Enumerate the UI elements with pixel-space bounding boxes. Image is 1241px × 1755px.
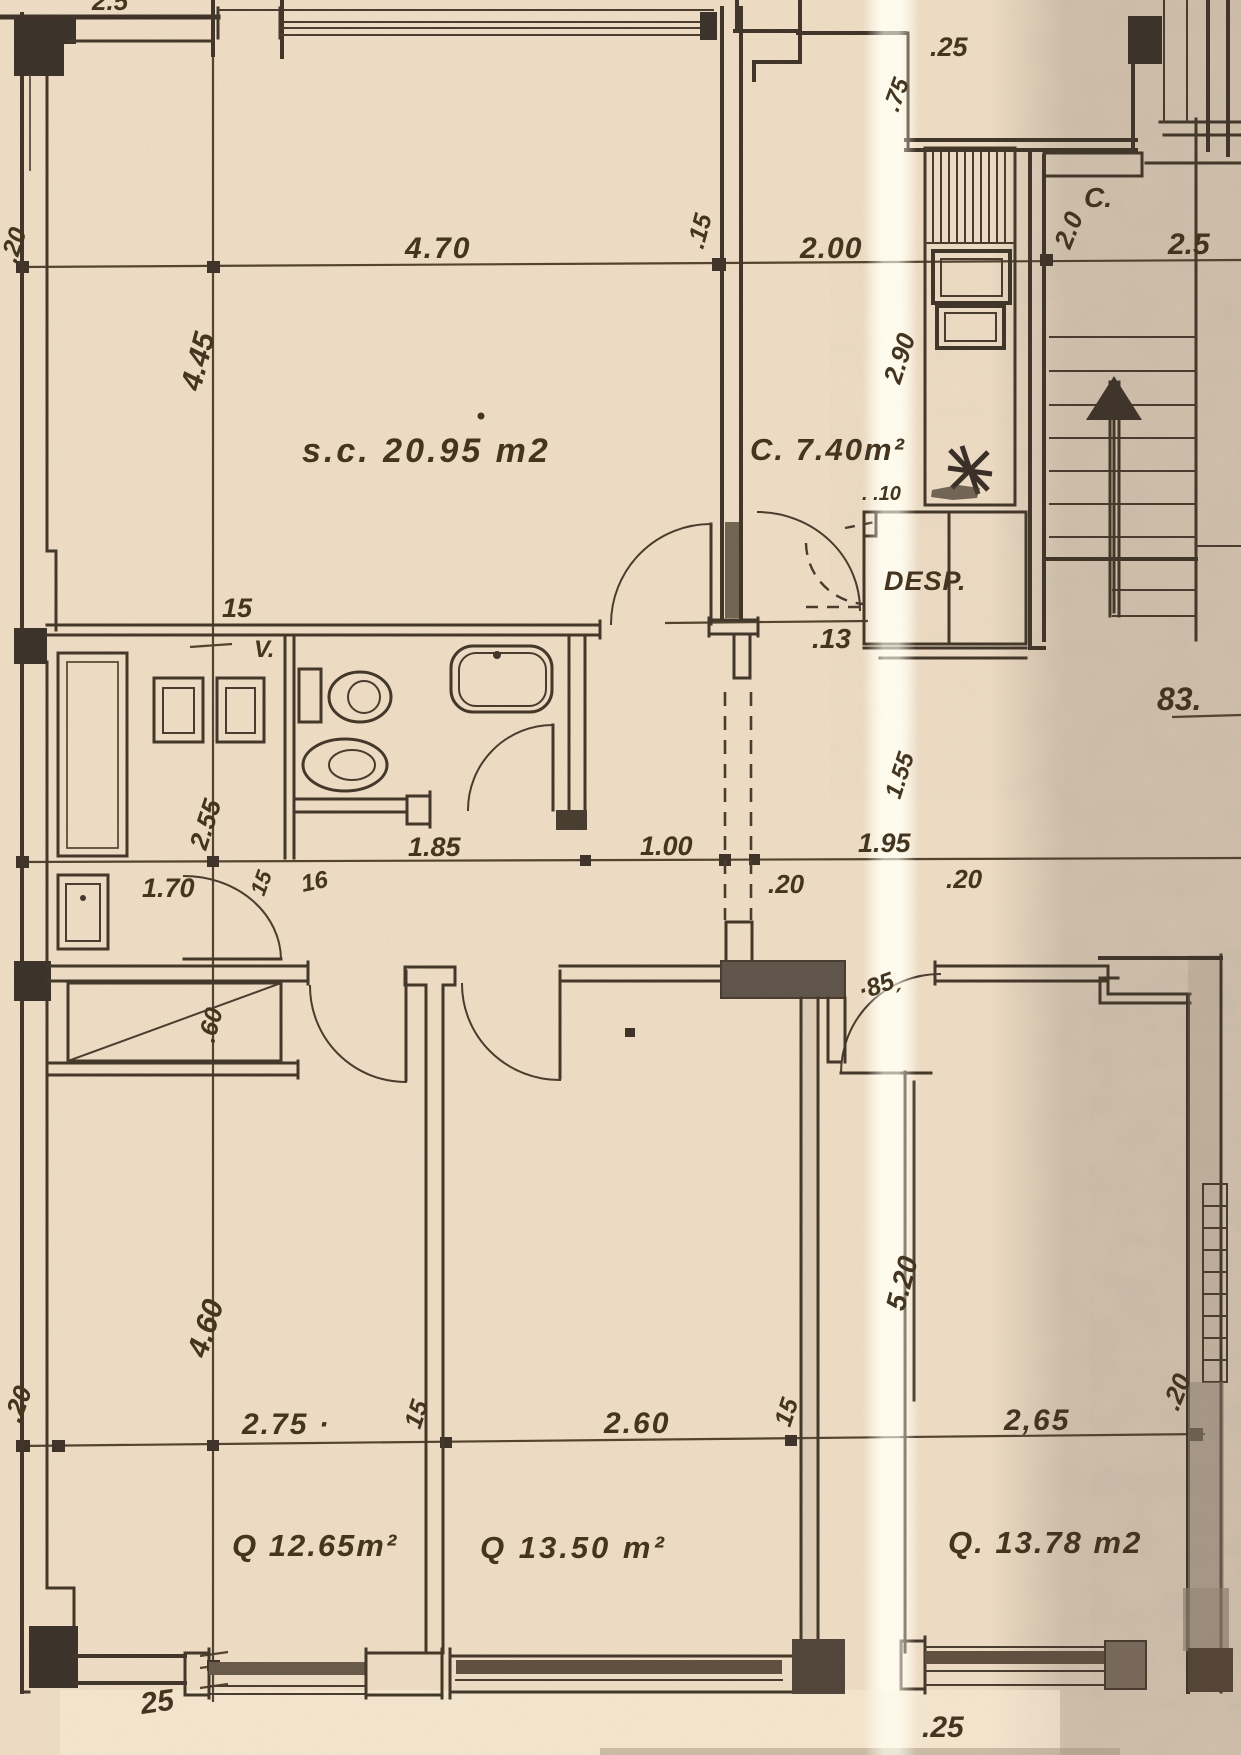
svg-text:V.: V. — [254, 636, 274, 663]
svg-text:C. 7.40m²: C. 7.40m² — [750, 432, 906, 467]
svg-text:Q 13.50 m²: Q 13.50 m² — [480, 1530, 667, 1565]
svg-text:83.: 83. — [1157, 681, 1201, 717]
svg-text:1.95: 1.95 — [858, 828, 912, 858]
svg-text:s.c. 20.95 m2: s.c. 20.95 m2 — [302, 432, 551, 470]
svg-text:. .10: . .10 — [862, 483, 901, 505]
svg-text:DESP.: DESP. — [884, 566, 967, 596]
svg-text:Q 12.65m²: Q 12.65m² — [232, 1528, 398, 1563]
svg-text:1.85: 1.85 — [408, 832, 462, 862]
svg-text:.25: .25 — [922, 1711, 965, 1744]
svg-text:2,65: 2,65 — [1003, 1404, 1070, 1437]
svg-text:2.5: 2.5 — [1167, 228, 1211, 261]
svg-text:C.: C. — [1084, 182, 1112, 213]
svg-text:.20: .20 — [946, 864, 983, 894]
svg-text:Q. 13.78 m2: Q. 13.78 m2 — [948, 1525, 1142, 1560]
svg-text:.20: .20 — [768, 869, 805, 899]
svg-text:1.00: 1.00 — [640, 831, 693, 861]
svg-text:1.70: 1.70 — [142, 873, 195, 903]
svg-text:.13: .13 — [812, 623, 851, 654]
svg-text:2.00: 2.00 — [799, 232, 862, 265]
svg-text:2.75 ·: 2.75 · — [241, 1408, 331, 1441]
svg-text:15: 15 — [222, 593, 253, 623]
svg-text:4.70: 4.70 — [404, 232, 471, 265]
svg-text:25: 25 — [137, 1683, 177, 1721]
svg-text:.25: .25 — [930, 32, 969, 62]
svg-text:2.60: 2.60 — [603, 1407, 670, 1440]
svg-text:2.5: 2.5 — [91, 0, 129, 16]
